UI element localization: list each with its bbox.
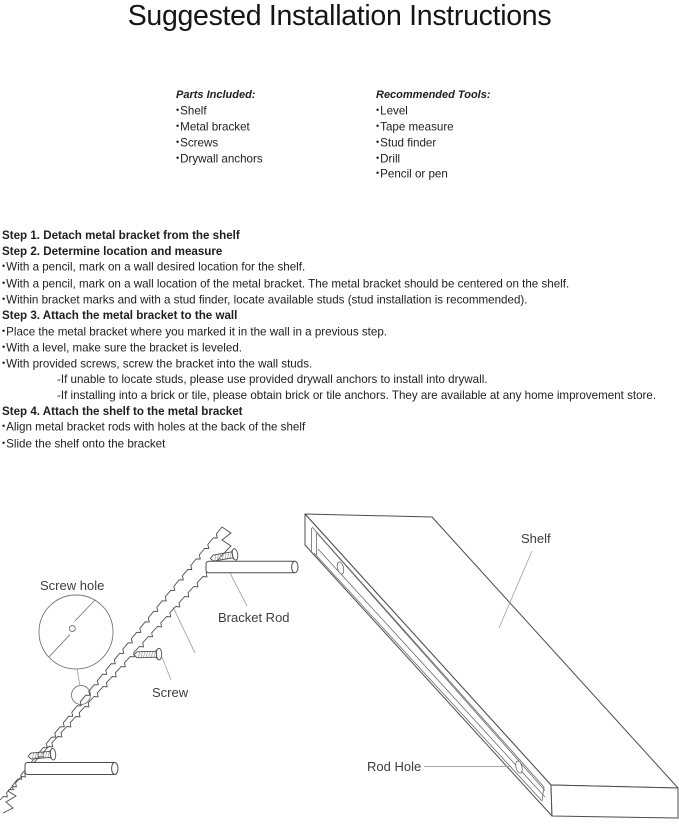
screw-illustration [134,648,162,661]
parts-included-list: Parts Included: Shelf Metal bracket Scre… [176,88,263,166]
recommended-tools-list: Recommended Tools: Level Tape measure St… [376,88,491,182]
step-3-subnote: -If unable to locate studs, please use p… [2,372,656,388]
bracket-rail-top-break [222,527,231,551]
step-3-subnote: -If installing into a brick or tile, ple… [2,388,656,404]
installation-instructions-page: { "title": "Suggested Installation Instr… [0,0,679,821]
parts-item: Screws [176,135,263,151]
page-title: Suggested Installation Instructions [0,0,679,33]
screw-shank-outline [210,552,234,562]
shelf-end-face [551,785,678,818]
bracket-rail-leader-line [173,607,195,653]
step-2-bullet: With a pencil, mark on a wall location o… [2,276,656,292]
bracket-rod-label: Bracket Rod [218,610,290,625]
step-4-heading: Step 4. Attach the shelf to the metal br… [2,404,656,420]
screw-hole-magnifier-circle [39,595,113,669]
step-3-bullet: Place the metal bracket where you marked… [2,324,656,340]
bracket-rod-end-cap [112,763,118,775]
instruction-steps: Step 1. Detach metal bracket from the sh… [2,228,656,452]
shelf-label: Shelf [521,531,551,546]
tools-item: Tape measure [376,119,491,135]
parts-included-heading: Parts Included: [176,88,263,103]
bracket-rod-body [206,561,295,573]
step-1-heading: Step 1. Detach metal bracket from the sh… [2,228,656,244]
screw-leader-line [162,657,171,680]
step-2-bullet: Within bracket marks and with a stud fin… [2,292,656,308]
screw-illustration [28,748,57,762]
parts-item: Metal bracket [176,119,263,135]
step-4-bullet: Align metal bracket rods with holes at t… [2,419,656,435]
step-3-bullet: With provided screws, screw the bracket … [2,356,656,372]
parts-item: Shelf [176,103,263,119]
screw-thread-hatching [138,651,156,657]
step-2-heading: Step 2. Determine location and measure [2,244,656,260]
bracket-rod-end-cap [292,561,298,573]
bracket-rod-body [25,763,115,775]
magnifier-leader-line [77,669,80,687]
parts-item: Drywall anchors [176,151,263,167]
bracket-and-shelf-diagram: Screw hole Bracket Rod Screw Shelf Rod H… [0,480,679,821]
screw-hole-detail [49,600,95,657]
step-4-bullet: Slide the shelf onto the bracket [2,436,656,452]
bracket-rod-leader-line [230,573,247,606]
step-3-heading: Step 3. Attach the metal bracket to the … [2,308,656,324]
step-2-bullet: With a pencil, mark on a wall desired lo… [2,259,656,275]
tools-item: Stud finder [376,135,491,151]
tools-item: Drill [376,151,491,167]
rod-hole-label: Rod Hole [367,759,421,774]
tools-item: Pencil or pen [376,166,491,182]
screw-label: Screw [152,685,189,700]
screw-shank-outline [134,651,157,658]
screw-hole-label: Screw hole [40,578,104,593]
recommended-tools-heading: Recommended Tools: [376,88,491,103]
bracket-rail-upper-edge [8,527,222,791]
screw-shank-outline [28,751,51,759]
screw-hole-keyhole [69,626,75,632]
tools-item: Level [376,103,491,119]
installation-diagram: Screw hole Bracket Rod Screw Shelf Rod H… [0,480,679,821]
step-3-bullet: With a level, make sure the bracket is l… [2,340,656,356]
bracket-rail-bottom-break [3,791,16,813]
screw-head [156,648,162,660]
